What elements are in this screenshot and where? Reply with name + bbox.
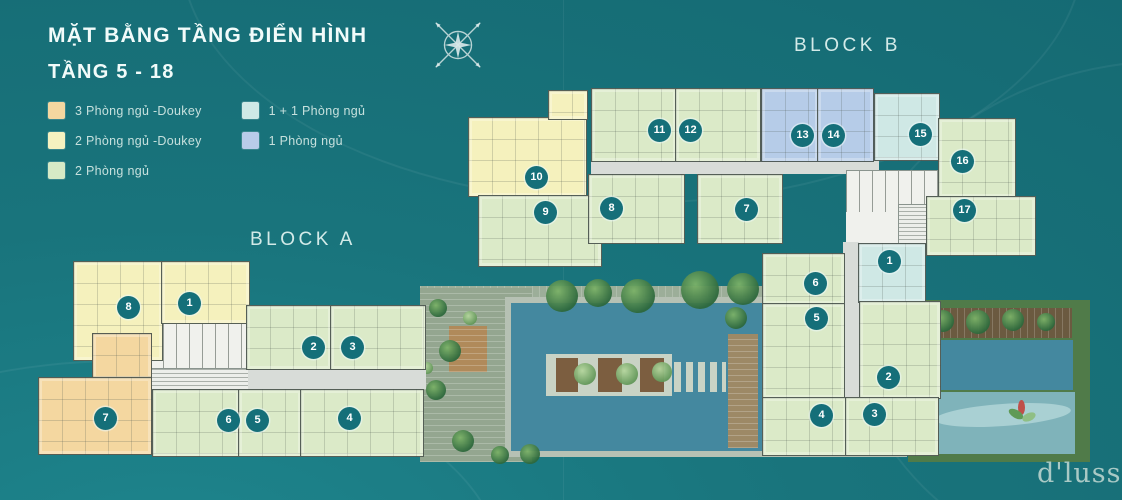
tree [546, 280, 578, 312]
tree [621, 279, 655, 313]
site-plan: 812376541091112131415871617165243 [0, 0, 1122, 500]
tree [725, 307, 747, 329]
unit-B-3 [845, 397, 939, 456]
unit-number-badge: 17 [953, 199, 976, 222]
unit-number-badge: 10 [525, 166, 548, 189]
unit-number-badge: 2 [302, 336, 325, 359]
lounger-deck [728, 334, 758, 448]
tree [681, 271, 719, 309]
unit-B-annex [548, 90, 588, 120]
stepping-stones [674, 362, 726, 392]
unit-number-badge: 8 [600, 197, 623, 220]
floorplan-page: MẶT BẰNG TẦNG ĐIỂN HÌNH TẦNG 5 - 18 3 Ph… [0, 0, 1122, 500]
tree [491, 446, 509, 464]
unit-B-17 [926, 196, 1036, 256]
tree [574, 363, 596, 385]
right-pool-water [925, 340, 1073, 390]
unit-B-5 [762, 303, 845, 399]
unit-number-badge: 7 [94, 407, 117, 430]
unit-number-badge: 3 [863, 403, 886, 426]
unit-number-badge: 14 [822, 124, 845, 147]
unit-B-6 [762, 253, 845, 305]
unit-number-badge: 6 [804, 272, 827, 295]
tree [463, 311, 477, 325]
corridor [591, 160, 879, 174]
unit-number-badge: 11 [648, 119, 671, 142]
unit-number-badge: 1 [878, 250, 901, 273]
unit-number-badge: 6 [217, 409, 240, 432]
unit-number-badge: 15 [909, 123, 932, 146]
unit-number-badge: 9 [534, 201, 557, 224]
tree [727, 273, 759, 305]
tree [426, 380, 446, 400]
unit-number-badge: 12 [679, 119, 702, 142]
unit-number-badge: 4 [338, 407, 361, 430]
unit-B-13 [761, 88, 819, 162]
tree [616, 363, 638, 385]
tree [452, 430, 474, 452]
unit-number-badge: 4 [810, 404, 833, 427]
unit-B-2 [859, 301, 941, 399]
unit-number-badge: 7 [735, 198, 758, 221]
unit-B-15 [874, 93, 940, 161]
unit-number-badge: 16 [951, 150, 974, 173]
corridor [248, 368, 426, 389]
unit-B-4 [762, 397, 847, 456]
unit-number-badge: 5 [246, 409, 269, 432]
unit-number-badge: 3 [341, 336, 364, 359]
tree [429, 299, 447, 317]
unit-number-badge: 1 [178, 292, 201, 315]
tree [1037, 313, 1055, 331]
unit-B-16 [938, 118, 1016, 198]
tree [966, 310, 990, 334]
unit-number-badge: 2 [877, 366, 900, 389]
unit-A-1 [161, 261, 250, 324]
tree [584, 279, 612, 307]
unit-B-14 [817, 88, 874, 162]
unit-number-badge: 8 [117, 296, 140, 319]
tree [520, 444, 540, 464]
tree [652, 362, 672, 382]
unit-A-4 [300, 389, 424, 457]
unit-number-badge: 13 [791, 124, 814, 147]
unit-number-badge: 5 [805, 307, 828, 330]
unit-A-annex [92, 333, 152, 380]
core-elevators [150, 322, 250, 370]
tree [439, 340, 461, 362]
brand-logo: d'lusso [1037, 458, 1122, 489]
tree [1002, 309, 1024, 331]
